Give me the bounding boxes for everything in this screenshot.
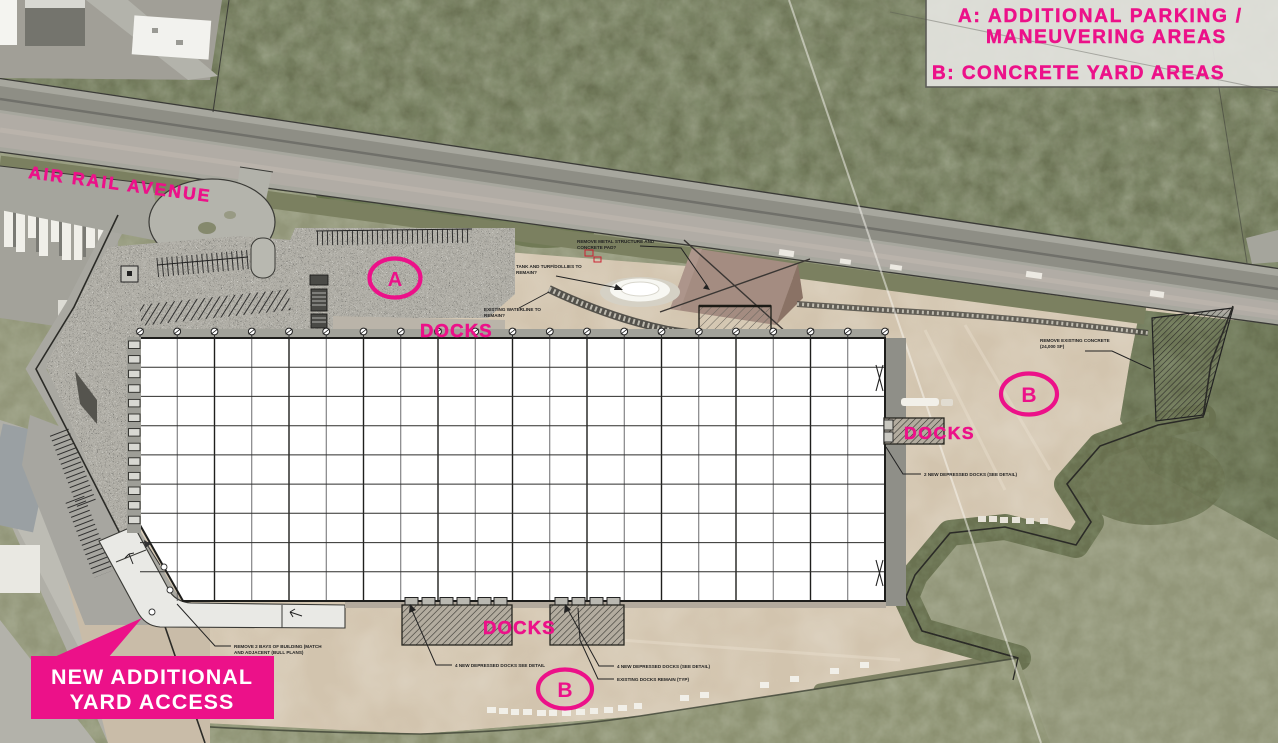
svg-text:NEW ADDITIONAL: NEW ADDITIONAL bbox=[51, 665, 253, 689]
svg-text:REMOVE 2 BAYS OF BUILDING (MAT: REMOVE 2 BAYS OF BUILDING (MATCH bbox=[234, 644, 322, 649]
svg-text:B: CONCRETE YARD AREAS: B: CONCRETE YARD AREAS bbox=[932, 63, 1225, 84]
svg-text:CONCRETE PAD?: CONCRETE PAD? bbox=[577, 245, 616, 250]
svg-text:TANK AND TURF/DOLLIES TO: TANK AND TURF/DOLLIES TO bbox=[516, 264, 582, 269]
svg-text:EXISTING WATERLINE TO: EXISTING WATERLINE TO bbox=[484, 307, 541, 312]
svg-text:YARD ACCESS: YARD ACCESS bbox=[70, 690, 235, 714]
svg-text:4 NEW DEPRESSED DOCKS SEE DETA: 4 NEW DEPRESSED DOCKS SEE DETAIL bbox=[455, 663, 545, 668]
svg-text:4 NEW DEPRESSED DOCKS (SEE DET: 4 NEW DEPRESSED DOCKS (SEE DETAIL) bbox=[617, 664, 711, 669]
svg-text:REMOVE METAL STRUCTURE AND: REMOVE METAL STRUCTURE AND bbox=[577, 239, 655, 244]
svg-text:A: A bbox=[388, 269, 402, 291]
svg-text:AND ADJACENT (BULL PLANS): AND ADJACENT (BULL PLANS) bbox=[234, 650, 304, 655]
svg-text:B: B bbox=[557, 679, 572, 702]
svg-text:EXISTING DOCKS REMAIN (TYP): EXISTING DOCKS REMAIN (TYP) bbox=[617, 677, 689, 682]
svg-text:2 NEW DEPRESSED DOCKS (SEE DET: 2 NEW DEPRESSED DOCKS (SEE DETAIL) bbox=[924, 472, 1018, 477]
svg-text:DOCKS: DOCKS bbox=[483, 617, 556, 638]
svg-text:REMAIN?: REMAIN? bbox=[516, 270, 537, 275]
svg-text:REMOVE EXISTING CONCRETE: REMOVE EXISTING CONCRETE bbox=[1040, 338, 1110, 343]
svg-text:(24,000 SF): (24,000 SF) bbox=[1040, 344, 1065, 349]
svg-text:REMAIN?: REMAIN? bbox=[484, 313, 505, 318]
svg-text:DOCKS: DOCKS bbox=[420, 320, 493, 341]
svg-text:MANEUVERING AREAS: MANEUVERING AREAS bbox=[986, 27, 1227, 48]
svg-text:DOCKS: DOCKS bbox=[904, 423, 975, 443]
svg-text:B: B bbox=[1021, 384, 1036, 407]
svg-text:A: ADDITIONAL PARKING /: A: ADDITIONAL PARKING / bbox=[958, 6, 1243, 27]
